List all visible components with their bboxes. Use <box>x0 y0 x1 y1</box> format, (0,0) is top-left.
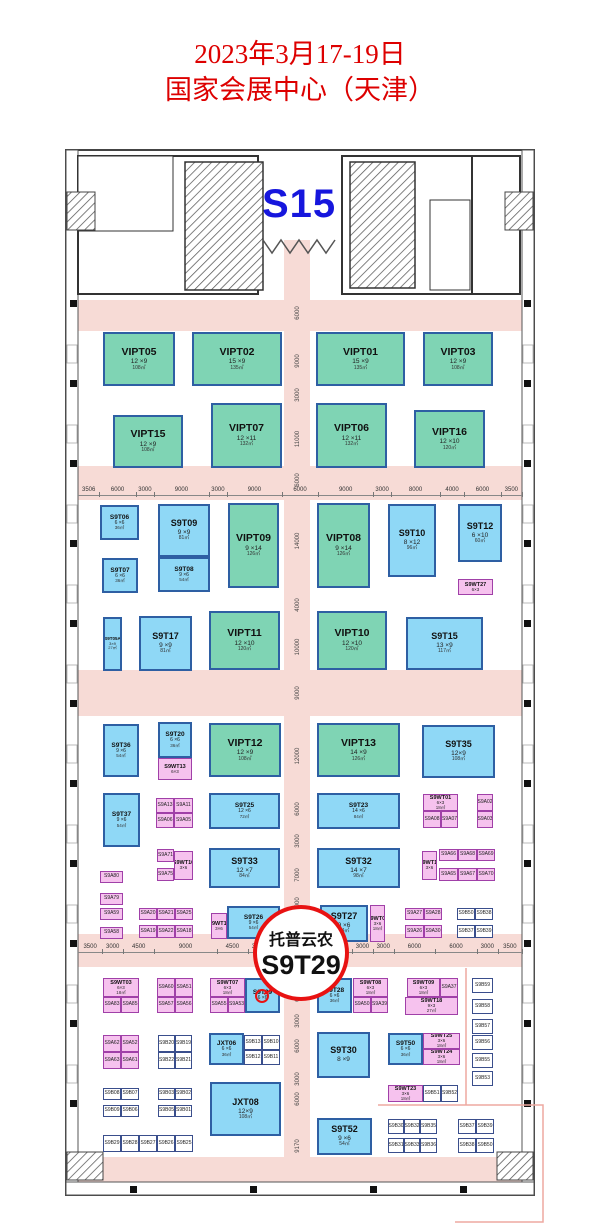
dims-bottom-value: 4500 <box>132 944 145 950</box>
booth-area: 18㎡ <box>437 1060 447 1065</box>
dims-bottom-tick <box>248 949 249 954</box>
dims-bottom-tick <box>154 949 155 954</box>
booth-id: S9A27 <box>407 911 422 917</box>
booth-area: 54㎡ <box>339 1142 350 1148</box>
booth-area: 96㎡ <box>407 546 418 552</box>
booth-size: 3×6 <box>180 866 188 871</box>
booth-s9a75: S9A75 <box>157 868 174 881</box>
booth-id: S9B13 <box>245 1040 260 1046</box>
booth-size: 6 ×6 <box>258 996 268 1002</box>
aisle-dimension-label: 10000 <box>295 637 301 657</box>
booth-vipt11: VIPT1112 ×10120㎡ <box>209 611 280 670</box>
booth-s9t23: S9T2314 ×684㎡ <box>317 793 400 829</box>
booth-id: S9B59 <box>475 983 490 989</box>
booth-id: S9B02 <box>176 1091 191 1097</box>
booth-id: VIPT03 <box>440 347 475 359</box>
booth-id: S9B55 <box>475 1058 490 1064</box>
booth-id: JXT08 <box>232 1098 259 1108</box>
booth-area: 72㎡ <box>240 815 250 820</box>
booth-s9t50: S9T506 ×636㎡ <box>388 1033 423 1065</box>
booth-area: 36㎡ <box>222 1053 232 1058</box>
booth-s9b11: S9B11 <box>262 1050 280 1065</box>
booth-id: VIPT10 <box>334 628 369 640</box>
booth-s9a62: S9A62 <box>103 1035 121 1052</box>
booth-id: S9B25 <box>176 1141 191 1147</box>
dims-top-value: 6000 <box>111 487 124 493</box>
booth-id: S9A08 <box>424 817 439 823</box>
aisle-dimension-label: 6000 <box>295 799 301 819</box>
booth-area: 108㎡ <box>451 366 464 372</box>
booth-s9a68: S9A68 <box>458 849 477 861</box>
booth-area: 18㎡ <box>401 1097 411 1102</box>
booth-area: 126㎡ <box>352 757 365 763</box>
booth-s9wt13: S9WT136×3 <box>158 758 192 780</box>
booth-area: 36㎡ <box>115 579 125 584</box>
booth-s9t05a: S9T05A3×927㎡ <box>103 617 122 671</box>
booth-s9b33: S9B33 <box>404 1138 420 1153</box>
booth-s9a37: S9A37 <box>440 978 458 997</box>
booth-s9a57: S9A57 <box>157 997 175 1013</box>
booth-s9a06: S9A06 <box>156 813 174 828</box>
booth-s9a18: S9A18 <box>175 925 193 938</box>
booth-size: 6×3 <box>171 770 179 775</box>
event-venue: 国家会展中心（天津） <box>0 72 600 108</box>
booth-s9b21: S9B21 <box>175 1052 192 1069</box>
dims-bottom-value: 3500 <box>503 944 516 950</box>
booth-s9b38: S9B38 <box>458 1138 476 1153</box>
booth-s9t06: S9T066 ×636㎡ <box>100 505 139 540</box>
booth-vipt09: VIPT099 ×14126㎡ <box>228 503 279 588</box>
booth-vipt15: VIPT1512 ×9108㎡ <box>113 415 183 468</box>
booth-s9t33: S9T3312 ×784㎡ <box>209 848 280 888</box>
booth-id: S9B32 <box>405 1124 420 1130</box>
booth-id: S9B27 <box>140 1141 155 1147</box>
booth-s9b39: S9B39 <box>476 1119 494 1134</box>
booth-s9t07: S9T076 ×636㎡ <box>102 558 138 593</box>
booth-s9wt25: S9WT253×618㎡ <box>423 1033 460 1049</box>
booth-s9a13: S9A13 <box>156 798 174 813</box>
booth-id: S9B38 <box>459 1143 474 1149</box>
hall-label: S15 <box>262 182 336 227</box>
booth-area: 108㎡ <box>141 448 154 454</box>
booth-s9b30: S9B30 <box>388 1119 404 1134</box>
booth-s9a28: S9A28 <box>424 908 442 920</box>
booth-s9a63: S9A63 <box>103 1052 121 1069</box>
booth-area: 132㎡ <box>240 442 253 448</box>
aisle-dimension-label: 3000 <box>295 385 301 405</box>
booth-id: S9B22 <box>159 1058 174 1064</box>
booth-s9a22: S9A22 <box>157 925 175 938</box>
booth-s9wt02: S9WT023×618㎡ <box>370 905 385 942</box>
booth-id: S9A63 <box>104 1058 119 1064</box>
booth-s9b51: S9B51 <box>423 1085 441 1102</box>
booth-s9a39: S9A39 <box>371 997 388 1013</box>
floorplan-canvas: 2023年3月17-19日 国家会展中心（天津） S15 <box>0 0 600 1229</box>
booth-id: S9A11 <box>176 803 191 809</box>
booth-s9b02: S9B02 <box>175 1088 192 1100</box>
booth-id: S9A02 <box>478 800 493 806</box>
booth-id: VIPT01 <box>343 347 378 359</box>
aisle-dimension-label: 9170 <box>295 1136 301 1156</box>
booth-vipt06: VIPT0612 ×11132㎡ <box>316 403 387 468</box>
aisle-dimension-label: 14000 <box>295 531 301 551</box>
booth-area: 108㎡ <box>452 757 465 763</box>
booth-s9a80: S9A80 <box>100 871 123 883</box>
booth-vipt12: VIPT1212 ×9108㎡ <box>209 723 281 777</box>
booth-id: S9B30 <box>389 1124 404 1130</box>
aisle-dimension-label: 7000 <box>295 865 301 885</box>
booth-s9t36: S9T369 ×654㎡ <box>103 724 139 777</box>
booth-s9b10: S9B10 <box>262 1035 280 1050</box>
booth-id: S9B37 <box>458 929 473 935</box>
booth-area: 108㎡ <box>238 757 251 763</box>
booth-id: S9B08 <box>104 1091 119 1097</box>
booth-vipt05: VIPT0512 ×9108㎡ <box>103 332 175 386</box>
dims-bottom-value: 3000 <box>377 944 390 950</box>
aisle-dimension-label: 11000 <box>295 429 301 449</box>
booth-id: S9A18 <box>176 929 191 935</box>
dims-bottom-tick <box>373 949 374 954</box>
booth-id: S9A30 <box>425 929 440 935</box>
booth-s9t30: S9T308 ×9 <box>317 1032 370 1078</box>
booth-id: VIPT09 <box>236 533 271 545</box>
aisle-dimension-label: 6000 <box>295 303 301 323</box>
booth-id: S9A37 <box>441 985 456 991</box>
dims-top-value: 3500 <box>505 487 518 493</box>
booth-s9t25: S9T2512 ×672㎡ <box>209 793 280 829</box>
booth-s9b55: S9B55 <box>472 1053 493 1068</box>
booth-s9a20: S9A20 <box>139 908 157 920</box>
booth-area: 18㎡ <box>436 806 446 811</box>
booth-id: S9B20 <box>159 1041 174 1047</box>
booth-id: S9B51 <box>424 1091 439 1097</box>
booth-s9b13: S9B13 <box>244 1035 262 1050</box>
dims-bottom-value: 3000 <box>356 944 369 950</box>
dims-top-value: 8000 <box>409 487 422 493</box>
booth-s9b50: S9B50 <box>457 908 475 920</box>
booth-s9wt01: S9WT016×318㎡ <box>423 794 458 811</box>
booth-s9b25: S9B25 <box>175 1135 193 1152</box>
event-title: 2023年3月17-19日 国家会展中心（天津） <box>0 36 600 108</box>
booth-id: S9A20 <box>140 911 155 917</box>
booth-id: S9T33 <box>231 857 258 867</box>
booth-id: S9A05 <box>176 818 191 824</box>
booth-id: S9A62 <box>104 1041 119 1047</box>
booth-id: S9A55 <box>211 1002 226 1008</box>
booth-s9a83: S9A83 <box>103 997 121 1013</box>
booth-id: VIPT08 <box>326 533 361 545</box>
booth-s9a58: S9A58 <box>100 927 123 939</box>
booth-s9t08: S9T089 ×654㎡ <box>158 557 210 592</box>
booth-id: S9B50 <box>477 1143 492 1149</box>
booth-s9b56: S9B56 <box>472 1035 493 1050</box>
booth-s9a19: S9A19 <box>139 925 157 938</box>
booth-area: 36㎡ <box>330 999 340 1004</box>
aisle-dimension-label: 3000 <box>295 831 301 851</box>
booth-id: S9A28 <box>425 911 440 917</box>
booth-size: 6×3 <box>472 588 480 593</box>
booth-s9b57: S9B57 <box>472 1019 493 1034</box>
booth-area: 84㎡ <box>239 874 250 880</box>
dims-top-tick <box>99 492 100 497</box>
booth-vipt10: VIPT1012 ×10120㎡ <box>317 611 387 670</box>
booth-s9wt17: S9WT173×6 <box>422 851 437 880</box>
booth-id: VIPT07 <box>229 423 264 435</box>
booth-area: 18㎡ <box>223 991 233 996</box>
booth-id: S9A70 <box>478 872 493 878</box>
booth-id: S9B39 <box>476 929 491 935</box>
booth-id: S9T32 <box>345 857 372 867</box>
booth-id: S9A80 <box>104 874 119 880</box>
dims-top-line <box>78 495 522 496</box>
booth-s9b27: S9B27 <box>139 1135 157 1152</box>
booth-s9b37: S9B37 <box>458 1119 476 1134</box>
booth-s9a70: S9A70 <box>477 868 495 881</box>
booth-vipt16: VIPT1612 ×10120㎡ <box>414 410 485 468</box>
highlight-company: 托普云农 <box>269 926 333 950</box>
booth-id: S9A07 <box>442 817 457 823</box>
booth-id: S9B19 <box>176 1041 191 1047</box>
booth-s9b53: S9B53 <box>472 1071 493 1086</box>
dims-top-value: 4000 <box>445 487 458 493</box>
booth-id: S9B29 <box>104 1141 119 1147</box>
aisle-dimension-label: 6000 <box>295 1089 301 1109</box>
booth-id: S9B10 <box>263 1040 278 1046</box>
dims-top-value: 3000 <box>138 487 151 493</box>
booth-id: S9T15 <box>431 632 458 642</box>
booth-s9b20: S9B20 <box>158 1035 175 1052</box>
booth-s9t10: S9T108 ×1296㎡ <box>388 504 436 577</box>
booth-s9wt23: S9WT233×618㎡ <box>388 1085 423 1102</box>
booth-s9t20: S9T206 ×636㎡ <box>158 722 192 758</box>
booth-area: 18㎡ <box>116 991 126 996</box>
booth-s9a53: S9A53 <box>228 997 245 1013</box>
dims-top-tick <box>522 492 523 497</box>
booth-id: S9B03 <box>159 1091 174 1097</box>
dims-top-value: 9000 <box>339 487 352 493</box>
booth-s9t17: S9T179 ×981㎡ <box>139 616 192 671</box>
booth-id: VIPT16 <box>432 427 467 439</box>
dims-top-value: 9000 <box>175 487 188 493</box>
aisle-dimension-label: 9000 <box>295 683 301 703</box>
booth-id: S9A75 <box>158 872 173 878</box>
booth-s9b50: S9B50 <box>476 1138 494 1153</box>
booth-id: S9T12 <box>467 522 494 532</box>
booth-s9t12: S9T126 ×1060㎡ <box>458 504 502 562</box>
dims-top-value: 6000 <box>293 487 306 493</box>
booth-id: S9A65 <box>441 872 456 878</box>
booth-id: S9A39 <box>372 1002 387 1008</box>
booth-id: S9A68 <box>460 852 475 858</box>
booth-id: S9B09 <box>104 1108 119 1114</box>
booth-area: 108㎡ <box>239 1115 252 1121</box>
booth-s9t35: S9T3512×9108㎡ <box>422 725 495 778</box>
booth-s9b06: S9B06 <box>121 1105 139 1117</box>
booth-s9b05: S9B05 <box>158 1105 175 1117</box>
booth-id: S9B36 <box>421 1143 436 1149</box>
booth-s9a02: S9A02 <box>477 794 493 811</box>
booth-id: S9T10 <box>399 529 426 539</box>
booth-s9a65: S9A65 <box>439 868 458 881</box>
dims-bottom-tick <box>102 949 103 954</box>
booth-s9b22: S9B22 <box>158 1052 175 1069</box>
booth-vipt13: VIPT1314 ×9126㎡ <box>317 723 400 777</box>
booth-s9wt18: S9WT189×327㎡ <box>405 997 458 1015</box>
booth-id: S9A13 <box>157 803 172 809</box>
booth-s9a03: S9A03 <box>477 811 493 828</box>
dims-top-tick <box>209 492 210 497</box>
dims-top-tick <box>154 492 155 497</box>
booth-s9a66: S9A66 <box>439 849 458 861</box>
booth-id: S9B07 <box>122 1091 137 1097</box>
booth-s9a25: S9A25 <box>175 908 193 920</box>
booth-area: 108㎡ <box>132 366 145 372</box>
booth-s9wt07: S9WT076×318㎡ <box>210 978 245 997</box>
booth-area: 18㎡ <box>366 991 376 996</box>
dims-top-tick <box>440 492 441 497</box>
event-date: 2023年3月17-19日 <box>0 36 600 72</box>
booth-id: VIPT13 <box>341 738 376 750</box>
booth-area: 98㎡ <box>353 874 364 880</box>
booth-s9a07: S9A07 <box>441 811 458 828</box>
booth-id: S9B35 <box>421 1124 436 1130</box>
booth-s9t09: S9T099 ×981㎡ <box>158 504 210 557</box>
booth-id: S9A83 <box>104 1002 119 1008</box>
booth-s9wt08: S9WT086×318㎡ <box>353 978 388 997</box>
booth-s9b37: S9B37 <box>457 925 475 938</box>
dims-bottom-value: 6000 <box>449 944 462 950</box>
booth-id: S9B52 <box>442 1091 457 1097</box>
booth-area: 81㎡ <box>179 536 190 542</box>
booth-s9b28: S9B28 <box>121 1135 139 1152</box>
booth-size: 3×6 <box>426 866 434 871</box>
booth-id: S9A53 <box>229 1002 244 1008</box>
booth-s9b09: S9B09 <box>103 1105 121 1117</box>
booth-id: S9B31 <box>389 1143 404 1149</box>
booth-id: S9A50 <box>354 1002 369 1008</box>
booth-area: 135㎡ <box>230 366 243 372</box>
booth-area: 60㎡ <box>475 539 486 545</box>
dims-bottom-tick <box>435 949 436 954</box>
booth-s9a27: S9A27 <box>405 908 424 920</box>
booth-id: S9A60 <box>158 985 173 991</box>
booth-id: S9B56 <box>475 1040 490 1046</box>
booth-id: S9B11 <box>264 1055 279 1061</box>
booth-s9a26: S9A26 <box>405 925 424 938</box>
booth-s9a79: S9A79 <box>100 893 123 905</box>
booth-area: 120㎡ <box>345 647 358 653</box>
highlight-booth: S9T29 <box>261 950 341 981</box>
booth-area: 36㎡ <box>115 526 125 531</box>
dims-top-value: 3000 <box>375 487 388 493</box>
booth-s9a08: S9A08 <box>423 811 441 828</box>
aisle-dimension-label: 4000 <box>295 595 301 615</box>
aisle-dimension-label: 3000 <box>295 1069 301 1089</box>
booth-id: S9T52 <box>331 1125 358 1135</box>
booth-id: S9A69 <box>478 852 493 858</box>
booth-s9a50: S9A50 <box>353 997 371 1013</box>
booth-s9b31: S9B31 <box>388 1138 404 1153</box>
booth-size: 8 ×9 <box>337 1056 350 1063</box>
booth-area: 120㎡ <box>443 446 456 452</box>
booth-size: 3×6 <box>215 927 223 932</box>
booth-id: S9A66 <box>441 852 456 858</box>
booth-vipt01: VIPT0115 ×9135㎡ <box>316 332 405 386</box>
booth-s9b52: S9B52 <box>441 1085 458 1102</box>
dims-top-tick <box>391 492 392 497</box>
booth-s9b59: S9B59 <box>472 978 493 993</box>
booth-s9wt16: S9WT163×6 <box>174 851 193 880</box>
booth-id: S9B37 <box>459 1124 474 1130</box>
booth-s9a11: S9A11 <box>174 798 193 813</box>
dims-bottom-value: 3000 <box>481 944 494 950</box>
booth-area: 135㎡ <box>354 366 367 372</box>
booth-area: 54㎡ <box>179 578 189 583</box>
dims-bottom-tick <box>123 949 124 954</box>
booth-id: S9A58 <box>104 930 119 936</box>
booth-s9b19: S9B19 <box>175 1035 192 1052</box>
aisle-dimension-label: 6000 <box>295 1036 301 1056</box>
dims-bottom-value: 6000 <box>408 944 421 950</box>
booth-s9wt27: S9WT276×3 <box>458 579 493 595</box>
booth-s9b08: S9B08 <box>103 1088 121 1100</box>
booth-id: S9B26 <box>158 1141 173 1147</box>
highlight-callout: 托普云农 S9T29 <box>253 905 349 1001</box>
booth-jxt06: JXT066 ×636㎡ <box>209 1033 244 1065</box>
booth-id: S9T30 <box>330 1046 357 1056</box>
booth-area: 81㎡ <box>160 649 171 655</box>
dims-bottom-tick <box>477 949 478 954</box>
booth-s9wt15: S9WT153×6 <box>211 913 227 939</box>
booth-s9a69: S9A69 <box>477 849 495 861</box>
booth-area: 117㎡ <box>438 649 451 655</box>
booth-id: S9A25 <box>176 911 191 917</box>
booth-id: S9B58 <box>475 1004 490 1010</box>
booth-area: 36㎡ <box>401 1053 411 1058</box>
booth-s9wt03: S9WT036×318㎡ <box>103 978 139 997</box>
booth-area: 27㎡ <box>427 1009 437 1014</box>
booth-s9t15: S9T1513 ×9117㎡ <box>406 617 483 670</box>
booth-area: 120㎡ <box>238 647 251 653</box>
booth-id: S9A22 <box>158 929 173 935</box>
booth-id: S9B57 <box>475 1024 490 1030</box>
booth-vipt02: VIPT0215 ×9135㎡ <box>192 332 282 386</box>
booth-id: S9T35 <box>445 740 472 750</box>
booth-area: 126㎡ <box>337 552 350 558</box>
booth-jxt08: JXT0812×9108㎡ <box>210 1082 281 1136</box>
booth-id: S9A61 <box>122 1058 137 1064</box>
booth-s9b26: S9B26 <box>157 1135 175 1152</box>
booth-id: S9A85 <box>122 1002 137 1008</box>
booth-s9b58: S9B58 <box>472 999 493 1014</box>
booth-id: VIPT05 <box>121 347 156 359</box>
dims-top-value: 6000 <box>476 487 489 493</box>
booth-s9t52: S9T529 ×654㎡ <box>317 1118 372 1155</box>
booth-id: S9B39 <box>477 1124 492 1130</box>
dims-top-tick <box>318 492 319 497</box>
aisle-dimension-label: 9000 <box>295 351 301 371</box>
booth-id: S9B21 <box>176 1058 191 1064</box>
booth-s9a30: S9A30 <box>424 925 442 938</box>
dims-top-tick <box>136 492 137 497</box>
booth-vipt07: VIPT0712 ×11132㎡ <box>211 403 282 468</box>
booth-area: 54㎡ <box>117 824 127 829</box>
booth-area: 54㎡ <box>116 754 126 759</box>
booth-id: VIPT06 <box>334 423 369 435</box>
corridor-horizontal-bottom <box>78 1157 522 1182</box>
booth-s9b07: S9B07 <box>121 1088 139 1100</box>
dims-bottom-tick <box>498 949 499 954</box>
